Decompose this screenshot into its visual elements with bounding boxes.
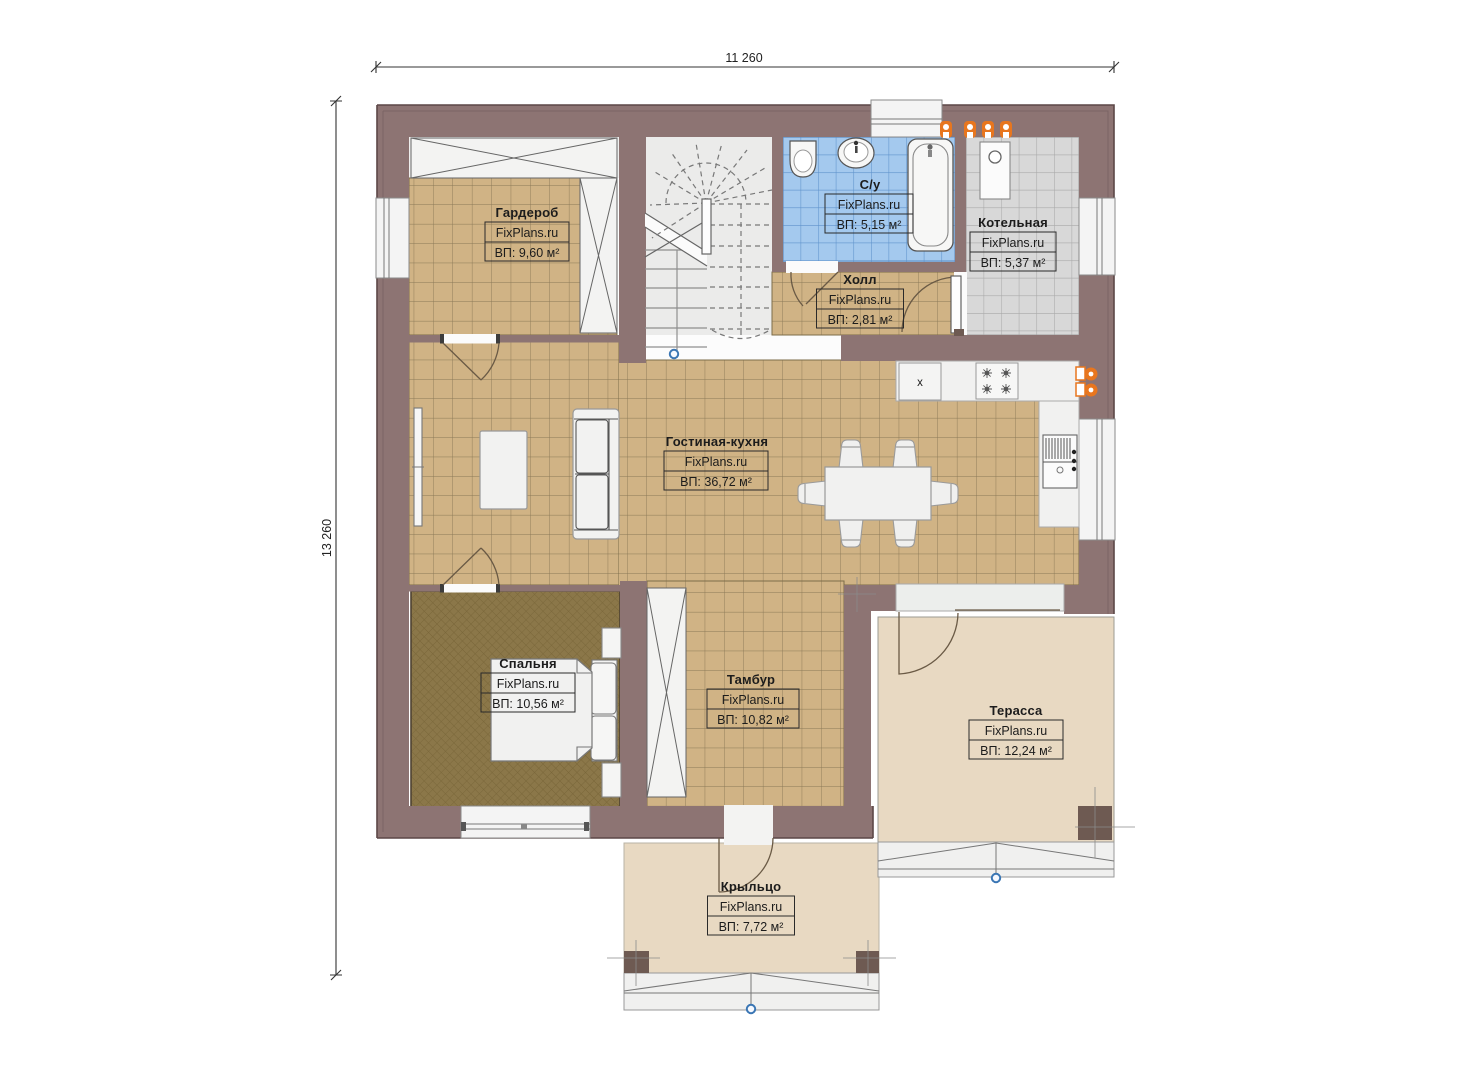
svg-text:FixPlans.ru: FixPlans.ru — [838, 198, 901, 212]
svg-text:ВП: 7,72 м²: ВП: 7,72 м² — [719, 920, 784, 934]
svg-text:FixPlans.ru: FixPlans.ru — [982, 236, 1045, 250]
svg-text:Тамбур: Тамбур — [727, 672, 775, 687]
svg-text:FixPlans.ru: FixPlans.ru — [985, 724, 1048, 738]
svg-text:С/у: С/у — [860, 177, 881, 192]
svg-text:FixPlans.ru: FixPlans.ru — [685, 455, 748, 469]
svg-text:FixPlans.ru: FixPlans.ru — [496, 226, 559, 240]
svg-text:Гардероб: Гардероб — [495, 205, 558, 220]
svg-text:Спальня: Спальня — [499, 656, 557, 671]
svg-text:ВП: 36,72 м²: ВП: 36,72 м² — [680, 475, 752, 489]
svg-text:FixPlans.ru: FixPlans.ru — [722, 693, 785, 707]
svg-text:Терасса: Терасса — [990, 703, 1044, 718]
svg-text:Котельная: Котельная — [978, 215, 1048, 230]
svg-text:ВП: 10,56 м²: ВП: 10,56 м² — [492, 697, 564, 711]
svg-text:11 260: 11 260 — [725, 51, 762, 65]
svg-text:13 260: 13 260 — [320, 519, 334, 557]
svg-text:Гостиная-кухня: Гостиная-кухня — [666, 434, 768, 449]
svg-text:Крыльцо: Крыльцо — [721, 879, 782, 894]
svg-text:ВП: 9,60 м²: ВП: 9,60 м² — [495, 246, 560, 260]
svg-text:x: x — [917, 377, 923, 389]
svg-text:FixPlans.ru: FixPlans.ru — [497, 677, 560, 691]
svg-text:ВП: 5,37 м²: ВП: 5,37 м² — [981, 256, 1046, 270]
svg-text:ВП: 12,24 м²: ВП: 12,24 м² — [980, 744, 1052, 758]
svg-text:ВП: 2,81 м²: ВП: 2,81 м² — [828, 313, 893, 327]
svg-text:FixPlans.ru: FixPlans.ru — [829, 293, 892, 307]
svg-text:ВП: 5,15 м²: ВП: 5,15 м² — [837, 218, 902, 232]
svg-text:FixPlans.ru: FixPlans.ru — [720, 900, 783, 914]
svg-text:ВП: 10,82 м²: ВП: 10,82 м² — [717, 713, 789, 727]
svg-text:Холл: Холл — [843, 272, 876, 287]
